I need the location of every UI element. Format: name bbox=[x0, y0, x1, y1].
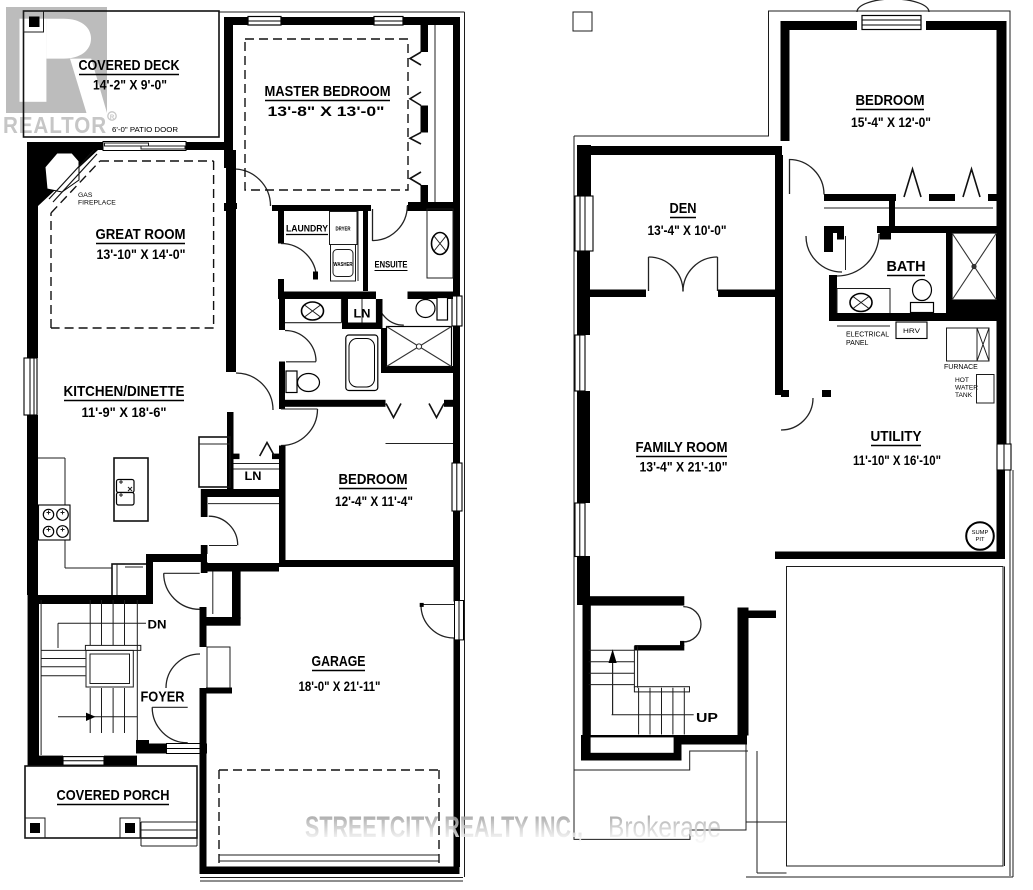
svg-text:HOT: HOT bbox=[955, 377, 969, 384]
svg-text:HRV: HRV bbox=[903, 328, 921, 335]
svg-text:MASTER BEDROOM: MASTER BEDROOM bbox=[265, 83, 391, 100]
svg-text:15'-4" X 12'-0": 15'-4" X 12'-0" bbox=[851, 115, 931, 130]
svg-text:14'-2" X 9'-0": 14'-2" X 9'-0" bbox=[93, 78, 167, 93]
svg-text:FAMILY ROOM: FAMILY ROOM bbox=[636, 439, 728, 456]
svg-text:PIT: PIT bbox=[975, 537, 984, 543]
svg-text:13'-4" X 21'-10": 13'-4" X 21'-10" bbox=[640, 460, 728, 475]
svg-text:GAS: GAS bbox=[78, 192, 93, 199]
svg-text:COVERED DECK: COVERED DECK bbox=[79, 57, 180, 74]
svg-text:R: R bbox=[110, 115, 115, 121]
svg-text:ELECTRICAL: ELECTRICAL bbox=[846, 332, 889, 339]
svg-text:REALTOR: REALTOR bbox=[3, 112, 107, 138]
svg-text:GREAT ROOM: GREAT ROOM bbox=[96, 226, 186, 243]
svg-text:11'-9" X 18'-6": 11'-9" X 18'-6" bbox=[82, 405, 167, 420]
svg-text:13'-4" X 10'-0": 13'-4" X 10'-0" bbox=[648, 223, 727, 238]
svg-text:LN: LN bbox=[245, 471, 262, 483]
svg-text:PANEL: PANEL bbox=[846, 340, 869, 347]
svg-text:ENSUITE: ENSUITE bbox=[375, 260, 408, 270]
svg-text:UP: UP bbox=[696, 710, 718, 725]
svg-text:GARAGE: GARAGE bbox=[312, 653, 366, 670]
svg-text:DEN: DEN bbox=[670, 200, 697, 217]
svg-text:BATH: BATH bbox=[887, 258, 926, 275]
svg-text:11'-10" X 16'-10": 11'-10" X 16'-10" bbox=[853, 453, 941, 468]
svg-text:6'-0" PATIO DOOR: 6'-0" PATIO DOOR bbox=[112, 125, 179, 134]
svg-text:FOYER: FOYER bbox=[141, 689, 185, 706]
svg-text:FIREPLACE: FIREPLACE bbox=[78, 200, 116, 207]
svg-text:13'-8" X 13'-0": 13'-8" X 13'-0" bbox=[268, 104, 385, 119]
svg-text:12'-4" X 11'-4": 12'-4" X 11'-4" bbox=[335, 494, 413, 509]
svg-text:LAUNDRY: LAUNDRY bbox=[286, 224, 329, 235]
svg-text:DN: DN bbox=[148, 618, 167, 632]
svg-text:SUMP: SUMP bbox=[972, 530, 989, 536]
svg-text:LN: LN bbox=[354, 309, 371, 321]
svg-text:FURNACE: FURNACE bbox=[944, 364, 978, 371]
svg-text:UTILITY: UTILITY bbox=[871, 428, 922, 445]
svg-text:WASHER: WASHER bbox=[334, 262, 353, 268]
svg-text:STREETCITY REALTY INC.,: STREETCITY REALTY INC., bbox=[305, 811, 583, 844]
svg-text:Brokerage: Brokerage bbox=[608, 811, 721, 844]
svg-text:TANK: TANK bbox=[955, 392, 973, 399]
svg-text:BEDROOM: BEDROOM bbox=[856, 92, 925, 109]
svg-text:WATER: WATER bbox=[955, 385, 978, 392]
svg-text:BEDROOM: BEDROOM bbox=[339, 471, 408, 488]
svg-text:DRYER: DRYER bbox=[336, 227, 351, 233]
svg-text:13'-10" X 14'-0": 13'-10" X 14'-0" bbox=[97, 247, 186, 262]
svg-text:COVERED PORCH: COVERED PORCH bbox=[57, 787, 170, 804]
svg-text:KITCHEN/DINETTE: KITCHEN/DINETTE bbox=[64, 383, 185, 400]
svg-text:18'-0" X 21'-11": 18'-0" X 21'-11" bbox=[299, 679, 381, 694]
